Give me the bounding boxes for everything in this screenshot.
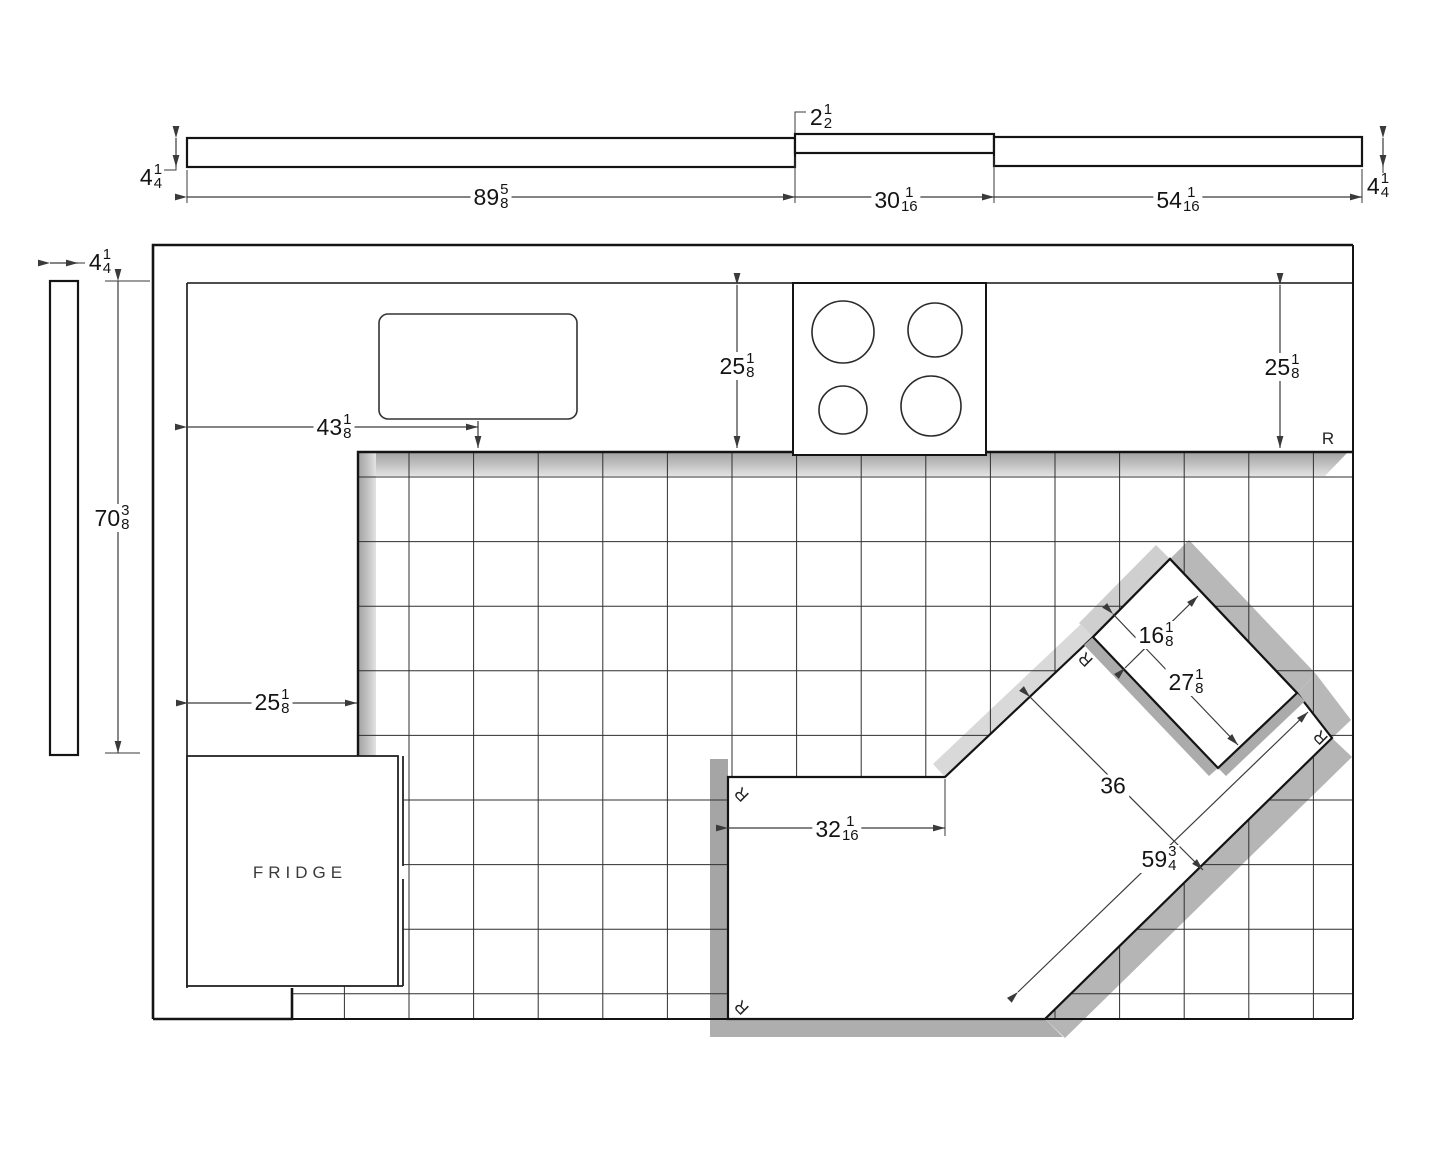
dim-left-counter-width: 2518 [252,688,293,716]
dim-island-width: 36 [1097,775,1129,798]
dim-counter-length-right: 54116 [1153,186,1202,214]
kitchen-floor-plan: 8958 30116 54116 414 414 212 414 7038 43… [0,0,1440,1152]
fridge-label: FRIDGE [253,863,347,883]
top-elevation-counter [187,134,1362,167]
dim-sink-offset: 4318 [314,413,355,441]
dim-counter-thickness-right: 414 [1367,172,1389,200]
dim-island-length: 5934 [1139,845,1180,873]
dim-backsplash-step: 212 [810,103,832,131]
dim-bar-length: 2718 [1166,668,1207,696]
sink [379,314,577,419]
dim-peninsula-length: 32116 [812,815,861,843]
dim-counter-depth-right: 2518 [1262,353,1303,381]
dim-counter-length-mid: 30116 [871,186,920,214]
dim-counter-length-left: 8958 [471,183,512,211]
dim-left-run-height: 7038 [92,504,133,532]
reference-label-r: R [1322,429,1334,449]
floor-plan-drawing [0,0,1440,1152]
dim-counter-thickness-left: 414 [140,163,162,191]
dim-bar-width: 1618 [1136,621,1177,649]
dim-counter-depth-mid: 2518 [717,352,758,380]
side-elevation-counter [50,281,78,755]
dim-side-counter-width: 414 [89,248,111,276]
